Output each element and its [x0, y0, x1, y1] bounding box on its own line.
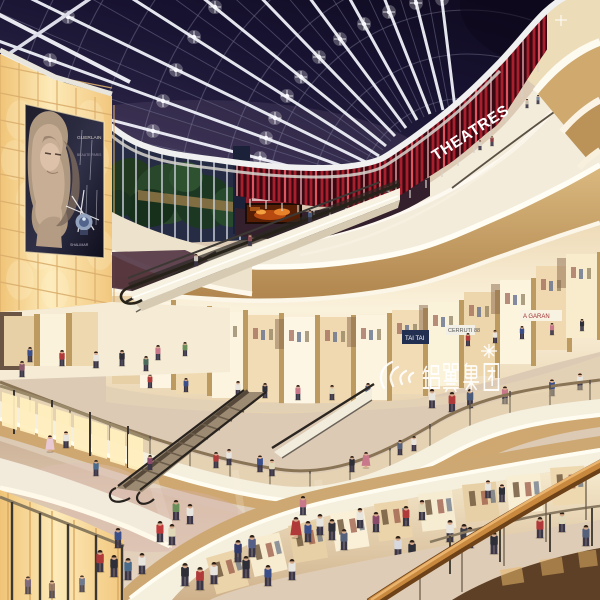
svg-text:TAI TAI: TAI TAI [405, 336, 425, 342]
svg-text:GUERLAIN: GUERLAIN [77, 135, 102, 141]
svg-text:SHALIMAR: SHALIMAR [70, 243, 89, 247]
svg-text:CERRUTI 88: CERRUTI 88 [448, 328, 480, 334]
svg-text:A GARAN: A GARAN [523, 314, 550, 320]
svg-text:BEAUTE PARIS: BEAUTE PARIS [77, 153, 102, 157]
